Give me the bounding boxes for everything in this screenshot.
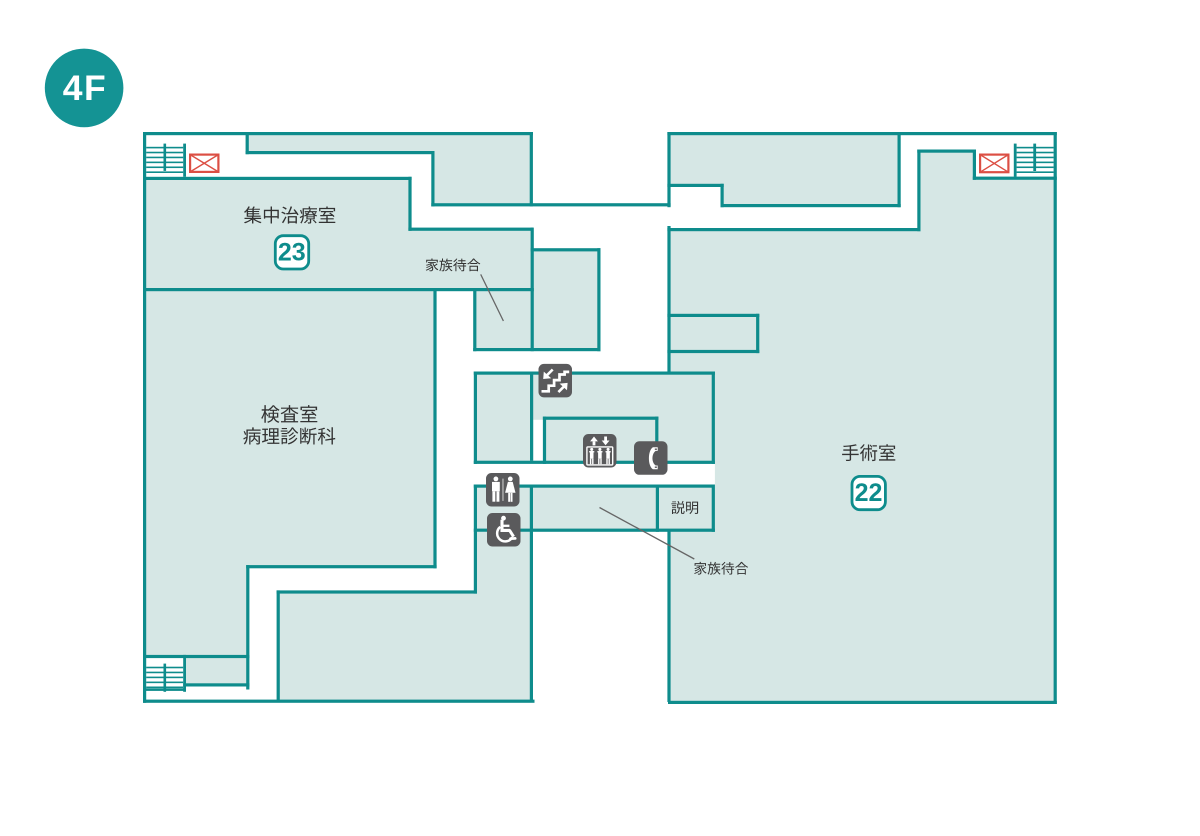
svg-text:4F: 4F — [63, 68, 107, 108]
svg-text:22: 22 — [855, 479, 883, 507]
svg-text:23: 23 — [278, 239, 306, 267]
